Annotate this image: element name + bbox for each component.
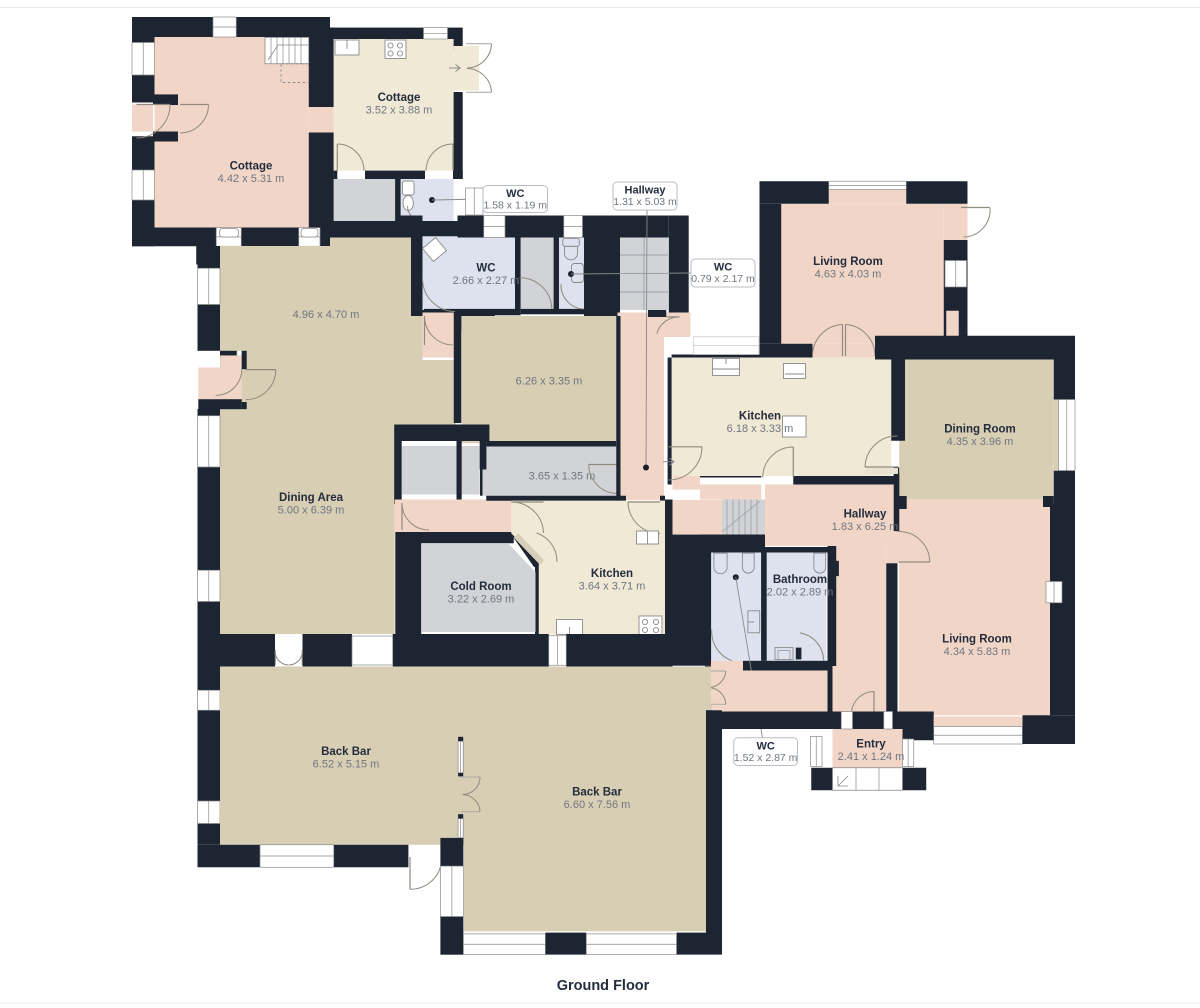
svg-text:2.41 x 1.24 m: 2.41 x 1.24 m bbox=[838, 751, 905, 763]
svg-text:6.52 x 5.15 m: 6.52 x 5.15 m bbox=[313, 759, 380, 771]
svg-text:3.22 x 2.69 m: 3.22 x 2.69 m bbox=[448, 594, 515, 606]
svg-text:Cottage: Cottage bbox=[378, 92, 421, 104]
svg-text:3.52 x 3.88 m: 3.52 x 3.88 m bbox=[366, 105, 433, 117]
svg-text:Hallway: Hallway bbox=[844, 509, 887, 521]
svg-text:WC: WC bbox=[476, 263, 495, 275]
svg-text:Ground Floor: Ground Floor bbox=[557, 978, 650, 994]
svg-text:2.02 x 2.89 m: 2.02 x 2.89 m bbox=[767, 587, 834, 599]
svg-text:4.42 x 5.31 m: 4.42 x 5.31 m bbox=[218, 173, 285, 185]
svg-text:6.26 x 3.35 m: 6.26 x 3.35 m bbox=[516, 376, 583, 388]
svg-text:Kitchen: Kitchen bbox=[591, 568, 633, 580]
svg-text:Cold Room: Cold Room bbox=[450, 581, 511, 593]
svg-text:WC: WC bbox=[756, 740, 774, 752]
svg-text:Living Room: Living Room bbox=[813, 256, 883, 268]
svg-text:Dining Area: Dining Area bbox=[279, 492, 344, 504]
svg-text:WC: WC bbox=[714, 262, 732, 274]
svg-text:WC: WC bbox=[506, 188, 524, 200]
svg-text:Kitchen: Kitchen bbox=[739, 411, 781, 423]
svg-text:Cottage: Cottage bbox=[230, 161, 273, 173]
svg-text:1.83 x 6.25 m: 1.83 x 6.25 m bbox=[832, 521, 899, 533]
svg-text:4.34 x 5.83 m: 4.34 x 5.83 m bbox=[944, 646, 1011, 658]
svg-text:1.58 x 1.19 m: 1.58 x 1.19 m bbox=[483, 200, 547, 212]
svg-text:Dining Room: Dining Room bbox=[944, 424, 1016, 436]
svg-text:Entry: Entry bbox=[856, 739, 886, 751]
svg-text:4.35 x 3.96 m: 4.35 x 3.96 m bbox=[947, 436, 1014, 448]
svg-text:2.66 x 2.27 m: 2.66 x 2.27 m bbox=[453, 275, 520, 287]
svg-text:Bathroom: Bathroom bbox=[773, 574, 827, 586]
svg-text:Back Bar: Back Bar bbox=[572, 787, 622, 799]
svg-text:5.00 x 6.39 m: 5.00 x 6.39 m bbox=[278, 505, 345, 517]
svg-text:3.64 x 3.71 m: 3.64 x 3.71 m bbox=[579, 581, 646, 593]
svg-text:Hallway: Hallway bbox=[625, 185, 667, 197]
svg-text:1.31 x 5.03 m: 1.31 x 5.03 m bbox=[613, 196, 677, 208]
svg-text:3.65 x 1.35 m: 3.65 x 1.35 m bbox=[529, 471, 596, 483]
svg-text:0.79 x 2.17 m: 0.79 x 2.17 m bbox=[691, 273, 755, 285]
svg-text:Back Bar: Back Bar bbox=[321, 746, 371, 758]
svg-text:6.60 x 7.56 m: 6.60 x 7.56 m bbox=[564, 799, 631, 811]
svg-text:Living Room: Living Room bbox=[942, 634, 1012, 646]
svg-text:6.18 x 3.33 m: 6.18 x 3.33 m bbox=[727, 423, 794, 435]
svg-text:1.52 x 2.87 m: 1.52 x 2.87 m bbox=[734, 752, 798, 764]
svg-text:4.96 x 4.70 m: 4.96 x 4.70 m bbox=[293, 309, 360, 321]
svg-text:4.63 x 4.03 m: 4.63 x 4.03 m bbox=[815, 269, 882, 281]
